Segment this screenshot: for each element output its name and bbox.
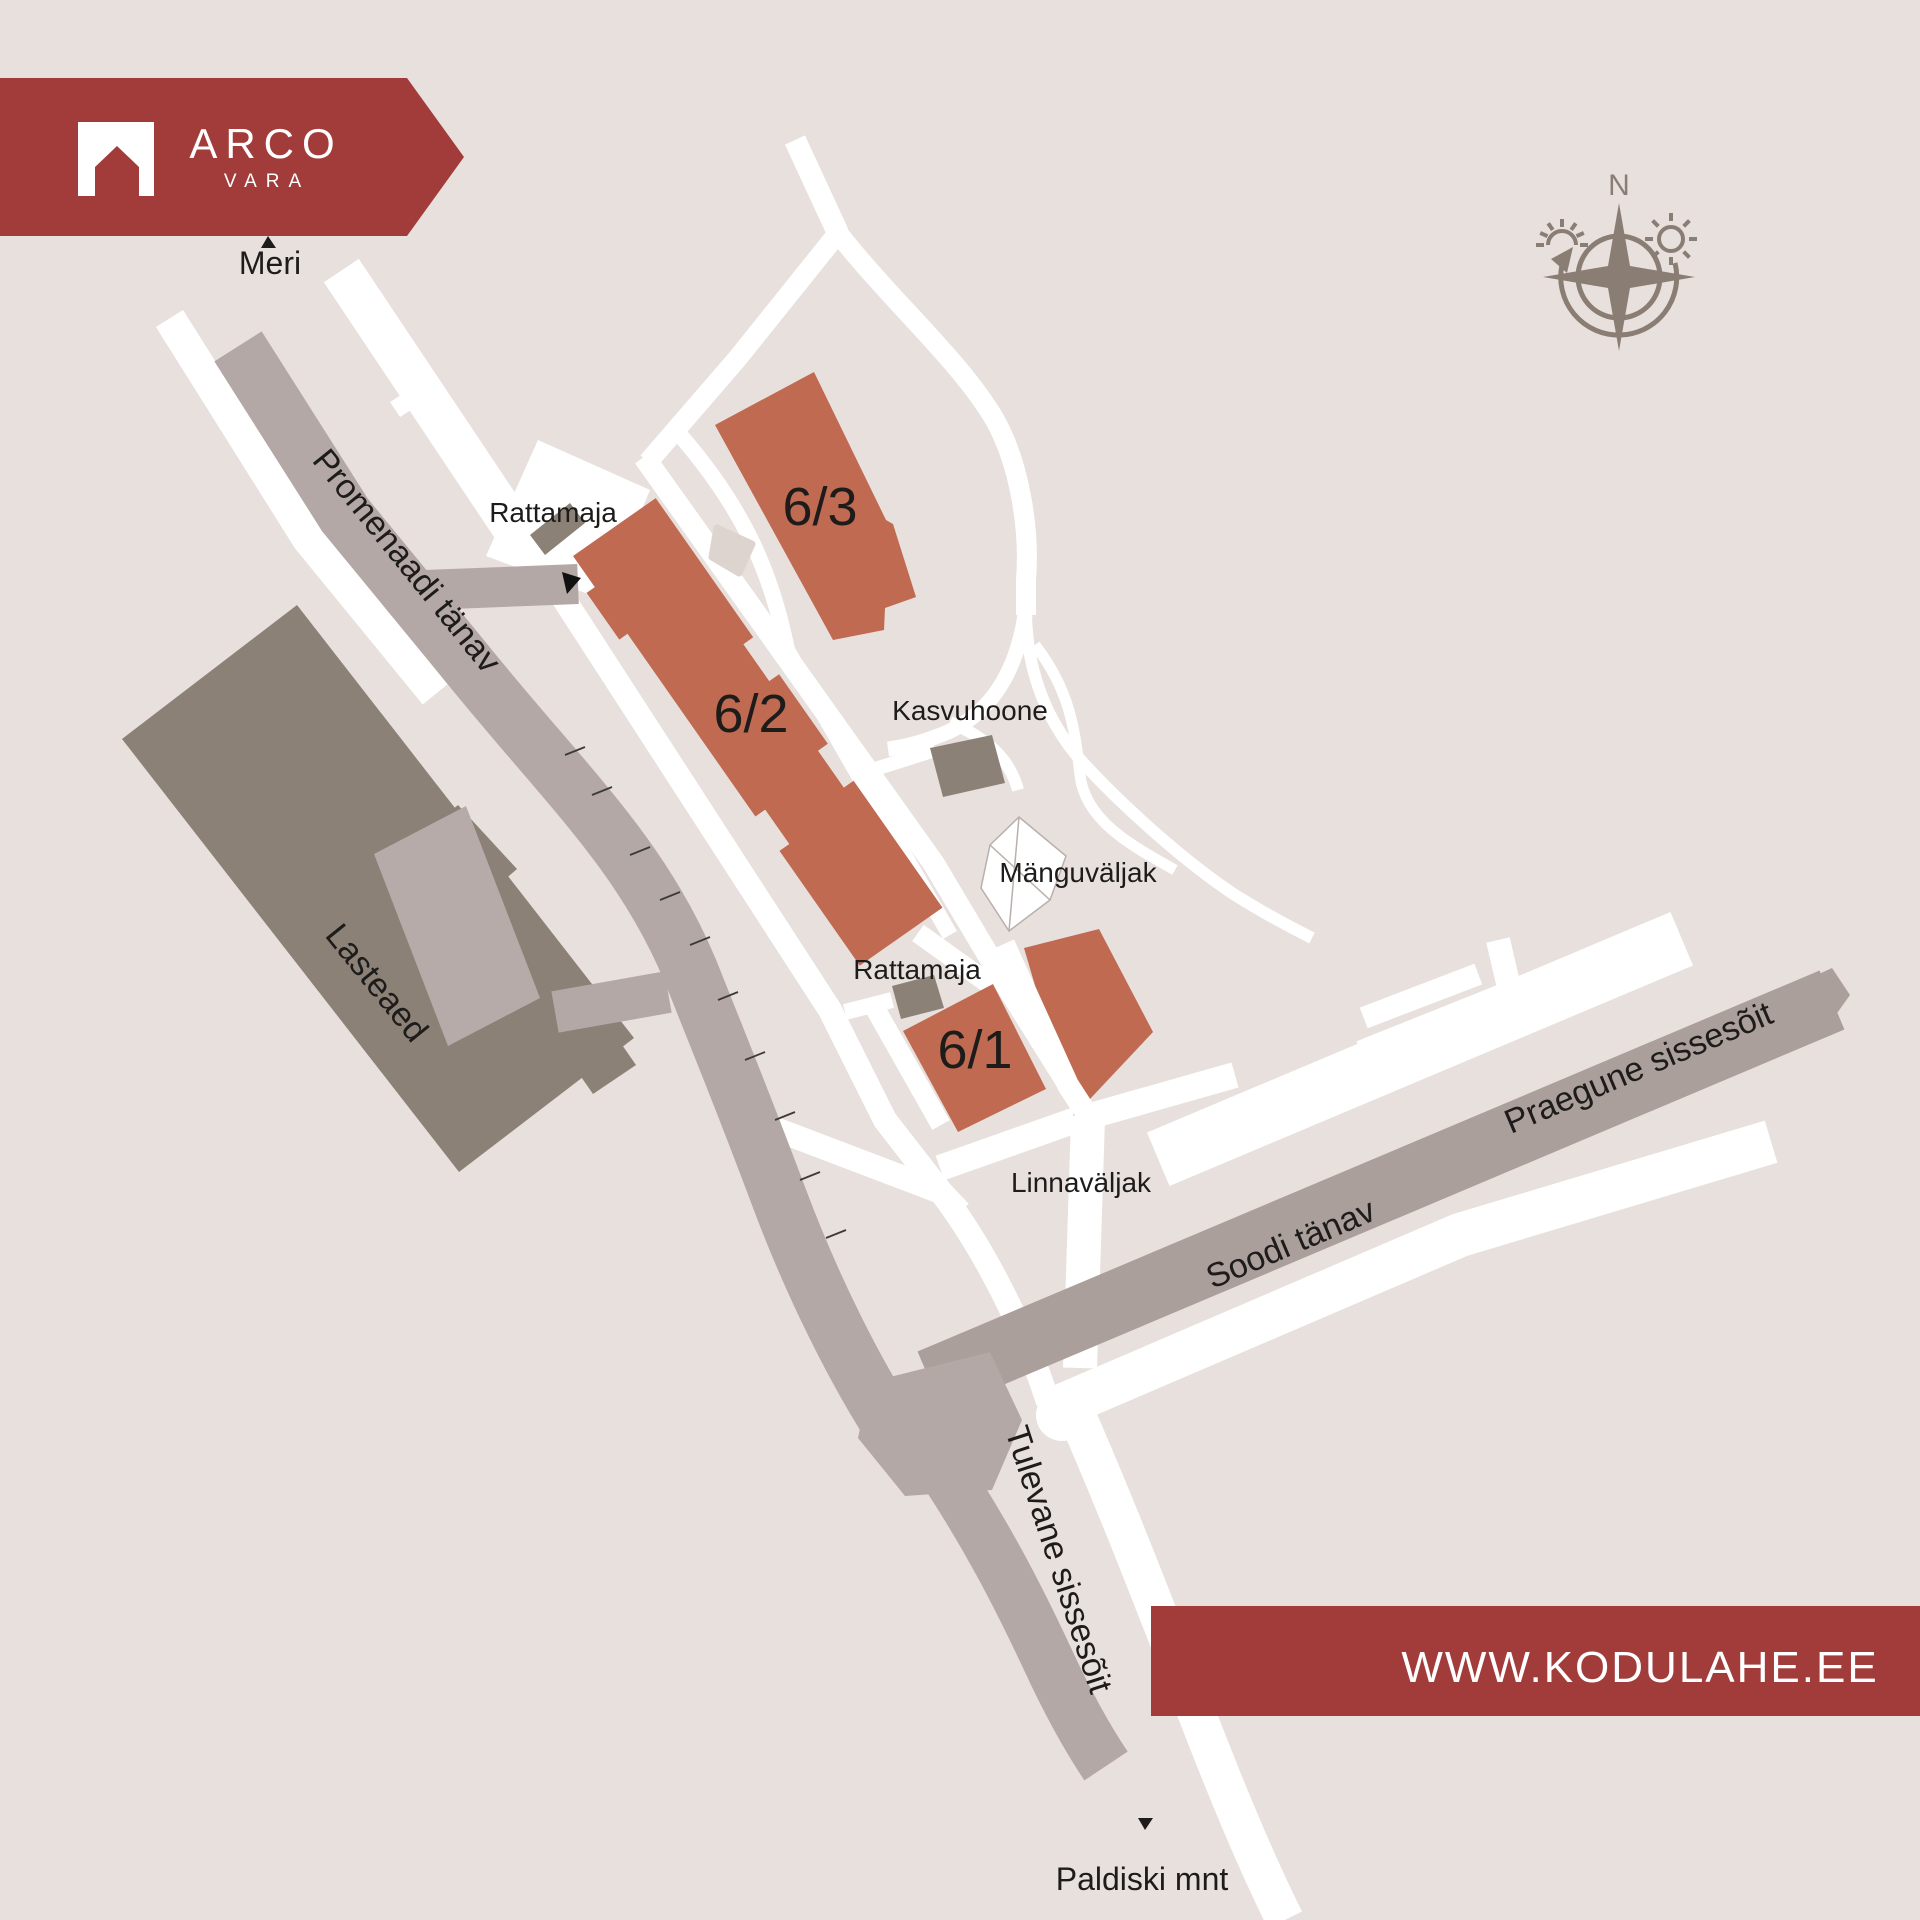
svg-text:Mänguväljak: Mänguväljak <box>999 857 1157 888</box>
svg-text:Kasvuhoone: Kasvuhoone <box>892 695 1048 726</box>
svg-text:6/1: 6/1 <box>937 1020 1012 1080</box>
svg-text:ARCO: ARCO <box>189 120 342 167</box>
svg-text:Paldiski mnt: Paldiski mnt <box>1056 1861 1229 1897</box>
svg-text:Linnaväljak: Linnaväljak <box>1011 1167 1152 1198</box>
svg-text:VARA: VARA <box>224 171 310 192</box>
svg-text:WWW.KODULAHE.EE: WWW.KODULAHE.EE <box>1401 1643 1878 1692</box>
svg-text:N: N <box>1608 169 1630 202</box>
svg-text:Meri: Meri <box>239 245 301 281</box>
svg-text:Rattamaja: Rattamaja <box>853 954 981 985</box>
svg-text:Rattamaja: Rattamaja <box>489 497 617 528</box>
svg-text:6/2: 6/2 <box>713 684 788 744</box>
svg-text:6/3: 6/3 <box>782 477 857 537</box>
